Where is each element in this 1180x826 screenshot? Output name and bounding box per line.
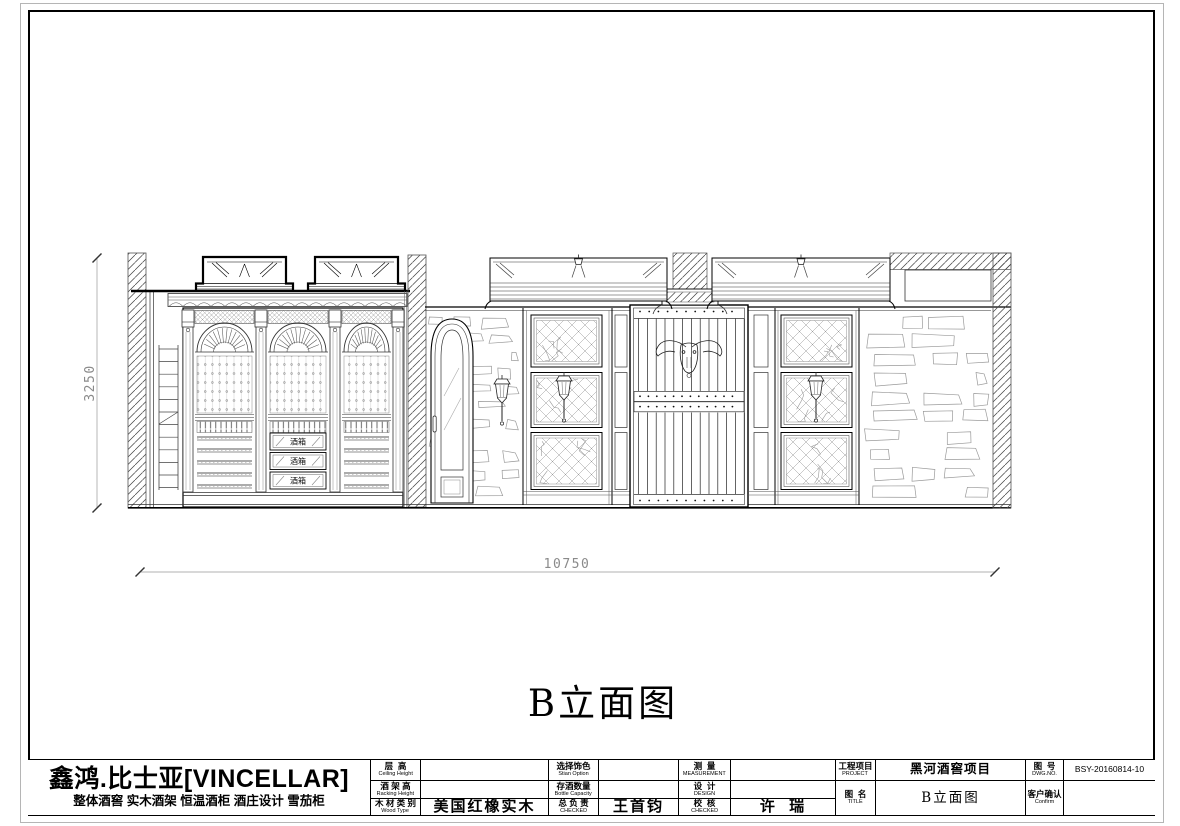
wine-box-label: 酒箱 [290,437,306,447]
field-stain-label: 选择饰色 Stian Option [548,760,598,780]
ceiling-value [420,760,548,780]
chief-value: 王首钧 [598,798,678,815]
field-design-label: 设 计 DESIGN [678,780,730,798]
wine-box-drawers: 酒箱 酒箱 酒箱 [270,433,326,489]
confirm-value [1063,780,1155,815]
field-project-label: 工程项目 PROJECT [835,760,875,780]
project-value: 黑河酒窖项目 [875,760,1025,780]
field-measure-label: 测 量 MEASUREMENT [678,760,730,780]
barn-door [630,305,748,507]
field-racking-label: 酒 架 高 Racking Height [370,780,420,798]
field-wood-label: 木 材 类 别 Wood Type [370,798,420,815]
arched-door [431,319,473,503]
stone-pier [405,255,427,507]
wood-type-value: 美国红橡实木 [420,798,548,815]
company-tagline: 整体酒窖 实木酒架 恒温酒柜 酒庄设计 雪茄柜 [73,795,324,809]
wine-box-label: 酒箱 [290,456,306,466]
crown-pediment-right [308,257,405,291]
drawing-sheet: 酒箱 酒箱 酒箱 [0,0,1180,826]
drawing-title: B立面图 [493,673,713,727]
capacity-value [598,780,678,798]
design-value [730,780,835,798]
door-handle [433,416,436,432]
left-cornice-band [168,294,407,307]
wine-box-label: 酒箱 [290,476,306,486]
title-value: B立面图 [875,780,1025,815]
field-ceiling-label: 层 高 Ceiling Height [370,760,420,780]
stone-wall-right-section [865,316,989,497]
field-capacity-label: 存酒数量 Bottle Capacity [548,780,598,798]
field-chief-label: 总 负 责 CHECKED [548,798,598,815]
stain-value [598,760,678,780]
crown-pediment-left [196,257,293,291]
lattice-stone-panels-mid [531,315,602,490]
field-dwgno-label: 图 号 DWG.NO. [1025,760,1063,780]
measure-value [730,760,835,780]
dim-width-label: 10750 [544,557,591,572]
dwgno-value: BSY-20160814-10 [1063,760,1155,780]
dim-height-label: 3250 [83,364,98,401]
racking-value [420,780,548,798]
check-value: 许 瑞 [730,798,835,815]
company-block: 鑫鸿.比士亚[VINCELLAR] 整体酒窖 实木酒架 恒温酒柜 酒庄设计 雪茄… [28,760,370,815]
right-wall-hatch [890,253,1011,508]
company-name: 鑫鸿.比士亚[VINCELLAR] [49,766,349,793]
field-title-label: 图 名 TITLE [835,780,875,815]
title-block: 鑫鸿.比士亚[VINCELLAR] 整体酒窖 实木酒架 恒温酒柜 酒庄设计 雪茄… [28,759,1155,815]
field-confirm-label: 客户确认 Confirm [1025,780,1063,815]
field-check-label: 校 核 CHECKED [678,798,730,815]
ladder [159,345,178,490]
